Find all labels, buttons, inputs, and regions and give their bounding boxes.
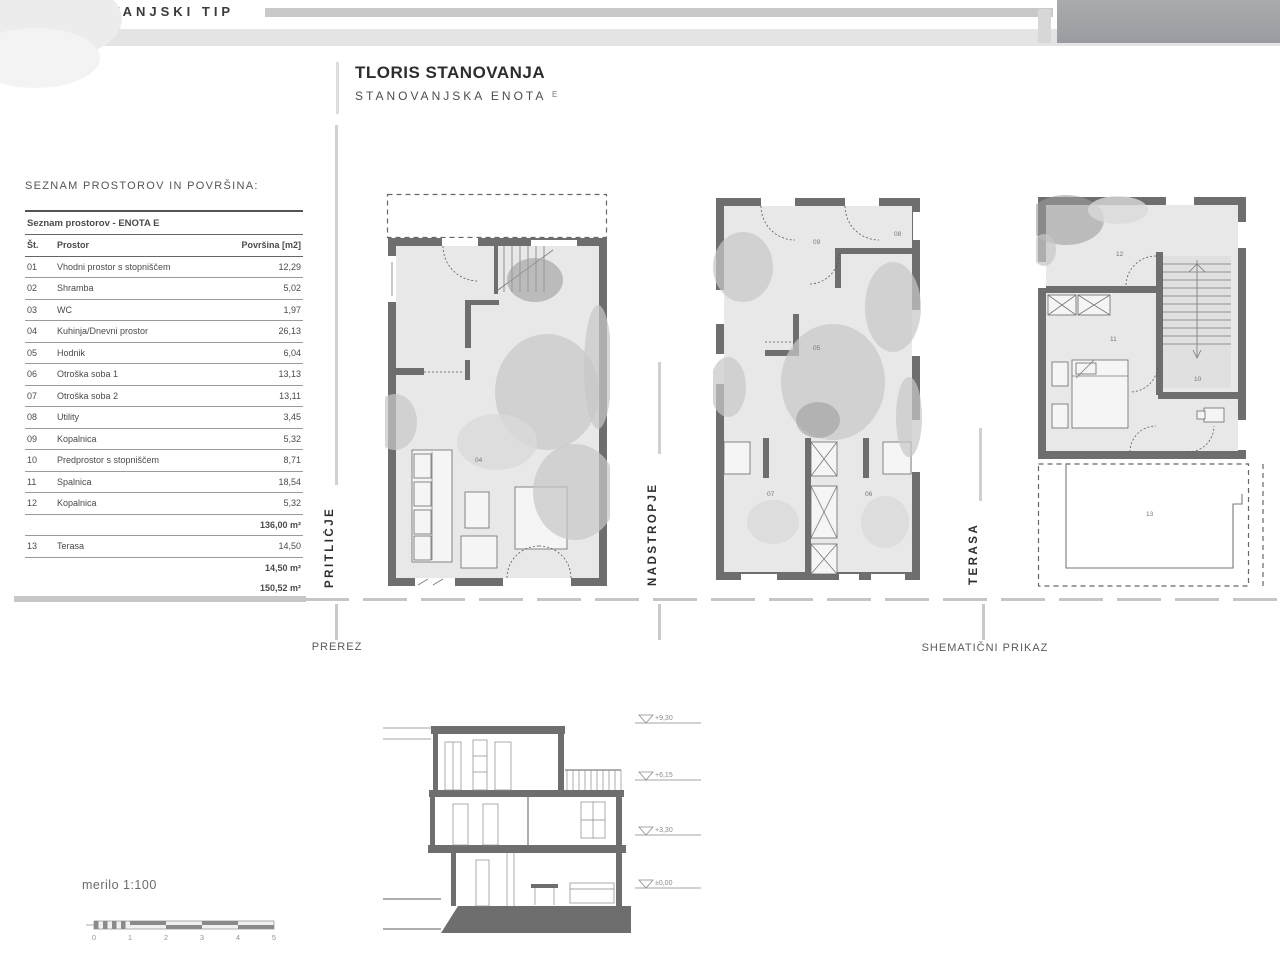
level-label-330: +3,30 <box>655 827 673 834</box>
sheet-subtitle: STANOVANJSKA ENOTA E <box>355 89 558 103</box>
section-furniture <box>531 883 614 905</box>
level-marker-330: +3,30 <box>635 827 701 835</box>
subtotal-terrace-row: 14,50 m² <box>25 557 303 578</box>
section-cut-line-nadstropje <box>658 362 661 454</box>
table-title-row: Seznam prostorov - ENOTA E <box>25 211 303 235</box>
label-shematicni-prikaz: SHEMATIČNI PRIKAZ <box>905 642 1065 654</box>
header-small-square <box>1038 9 1051 43</box>
table-row: 08Utility3,45 <box>25 407 303 429</box>
terrace-row: 13 Terasa 14,50 <box>25 536 303 558</box>
scale-tick-0: 0 <box>92 933 96 942</box>
ground-reference-dashed-line <box>305 598 1280 601</box>
terrace-outline <box>1039 464 1264 586</box>
table-header-row: Št. Prostor Površina [m2] <box>25 235 303 257</box>
floorplan-nadstropje: 09 08 05 07 06 <box>713 192 923 590</box>
section-interior <box>445 740 605 906</box>
room-number-12: 12 <box>1116 251 1124 258</box>
sheet-subtitle-text: STANOVANJSKA ENOTA <box>355 89 546 103</box>
room-number-07: 07 <box>767 491 775 498</box>
table-row: 10Predprostor s stopniščem8,71 <box>25 450 303 472</box>
room-number-11: 11 <box>1110 336 1117 343</box>
table-row: 05Hodnik6,04 <box>25 342 303 364</box>
scale-label: merilo 1:100 <box>82 878 157 892</box>
level-marker-615: +6,15 <box>635 772 701 780</box>
header-photo-thumbnail <box>1057 0 1280 43</box>
room-number-06: 06 <box>865 491 873 498</box>
table-row: 11Spalnica18,54 <box>25 471 303 493</box>
title-rule <box>336 62 339 114</box>
tick-middle <box>658 604 661 640</box>
level-marker-930: +9,30 <box>635 715 701 723</box>
level-label-000: ±0,00 <box>655 880 673 887</box>
table-row: 03WC1,97 <box>25 299 303 321</box>
tick-prerez <box>335 604 338 640</box>
floorplan-terasa-level: 12 11 10 13 <box>1036 192 1271 592</box>
floor-label-nadstropje: NADSTROPJE <box>647 456 659 586</box>
room-number-10: 10 <box>1194 376 1202 383</box>
graphic-scale-bar: 0 1 2 3 4 5 <box>86 915 286 947</box>
room-list-heading: SEZNAM PROSTOROV IN POVRŠINA: <box>25 180 259 192</box>
room-number-04: 04 <box>475 457 483 464</box>
tick-shematicni <box>982 604 985 640</box>
plan3-wardrobes <box>1048 295 1110 315</box>
floor-label-terasa: TERASA <box>968 505 980 585</box>
table-row: 01Vhodni prostor s stopniščem12,29 <box>25 256 303 278</box>
table-row: 06Otroška soba 113,13 <box>25 364 303 386</box>
level-label-615: +6,15 <box>655 772 673 779</box>
section-cut-line-pritlicje <box>335 125 338 485</box>
sheet-subtitle-suffix: E <box>552 90 558 99</box>
level-marker-000: ±0,00 <box>635 880 701 888</box>
table-row: 02Shramba5,02 <box>25 278 303 300</box>
room-number-13: 13 <box>1146 511 1154 518</box>
section-structure <box>428 726 631 933</box>
header-bar-dark <box>265 8 1053 17</box>
scale-tick-4: 4 <box>236 933 240 942</box>
table-row: 07Otroška soba 213,11 <box>25 385 303 407</box>
plan3-partitions <box>1046 286 1158 293</box>
sheet-title: TLORIS STANOVANJA <box>355 63 545 83</box>
plan-sheet: { "header": { "strip_title": "ANOVANJSKI… <box>0 0 1280 959</box>
scale-tick-1: 1 <box>128 933 132 942</box>
subtotal-interior-row: 136,00 m² <box>25 514 303 536</box>
table-row: 04Kuhinja/Dnevni prostor26,13 <box>25 321 303 343</box>
scale-tick-2: 2 <box>164 933 168 942</box>
scale-tick-5: 5 <box>272 933 276 942</box>
label-prerez: PREREZ <box>287 641 387 653</box>
floor-label-pritlicje: PRITLIČJE <box>324 488 336 588</box>
table-end-bar <box>14 596 306 602</box>
room-number-09: 09 <box>813 239 821 246</box>
room-area-table: Seznam prostorov - ENOTA E Št. Prostor P… <box>25 210 303 599</box>
room-number-05: 05 <box>813 345 821 352</box>
table-row: 12Kopalnica5,32 <box>25 493 303 515</box>
section-cut-line-terasa <box>979 428 982 501</box>
building-section: +9,30 +6,15 +3,30 ±0,00 <box>383 698 713 943</box>
floorplan-pritlicje: 04 <box>385 192 610 592</box>
table-row: 09Kopalnica5,32 <box>25 428 303 450</box>
section-railing <box>565 770 621 790</box>
level-label-930: +9,30 <box>655 715 673 722</box>
porch-dashed-outline <box>388 195 607 238</box>
room-number-08: 08 <box>894 231 902 238</box>
scale-tick-3: 3 <box>200 933 204 942</box>
